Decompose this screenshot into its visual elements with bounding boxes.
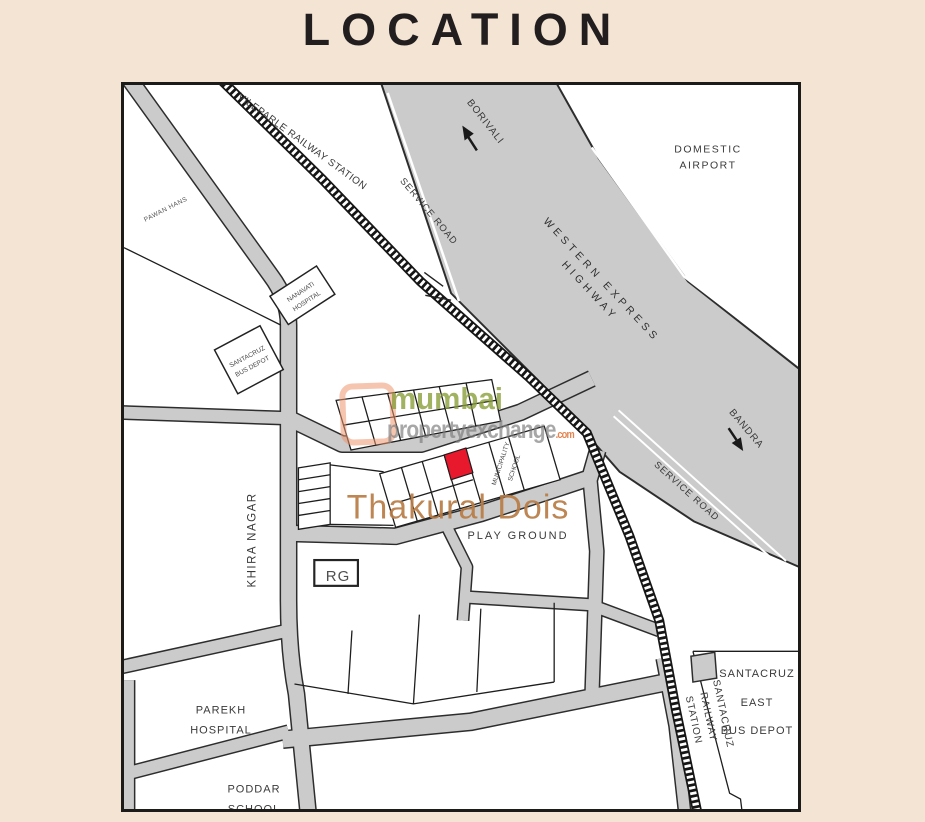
watermark-tld: .com bbox=[556, 429, 574, 441]
page-title: LOCATION bbox=[0, 4, 925, 56]
label-domestic-airport: DOMESTIC AIRPORT bbox=[663, 142, 753, 174]
label-rg: RG bbox=[326, 566, 351, 589]
watermark-brand-top: mumbai bbox=[390, 381, 503, 417]
label-project-name: Thakural Dois bbox=[347, 483, 570, 534]
page: LOCATION bbox=[0, 0, 925, 822]
label-santacruz-east-bus-depot: SANTACRUZ EAST BUS DEPOT bbox=[719, 660, 794, 746]
road-west-branch bbox=[124, 412, 289, 418]
label-play-ground: PLAY GROUND bbox=[467, 528, 568, 545]
label-khira-nagar: KHIRA NAGAR bbox=[244, 492, 261, 587]
road-south-main bbox=[283, 682, 668, 740]
plot-strips bbox=[298, 463, 330, 529]
location-map: mumbai propertyexchange.com VILEPARLE RA… bbox=[121, 82, 801, 812]
road-playground-west bbox=[447, 527, 467, 620]
label-parekh-hospital: PAREKH HOSPITAL bbox=[190, 701, 252, 742]
parcel-lines-south bbox=[294, 603, 554, 704]
watermark-brand-bottom: propertyexchange.com bbox=[387, 416, 574, 445]
road-parekh-north bbox=[124, 630, 289, 668]
road-playground-east bbox=[590, 478, 597, 700]
watermark-brand-name: propertyexchange bbox=[387, 416, 556, 444]
label-poddar-school: PODDAR SCHOOL bbox=[227, 780, 280, 812]
